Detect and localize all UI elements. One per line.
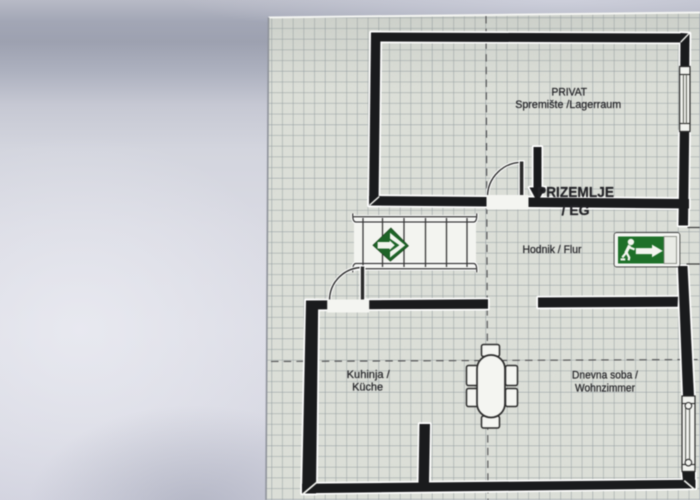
svg-text:Dnevna soba /: Dnevna soba /	[572, 370, 639, 382]
svg-text:Kuhinja /: Kuhinja /	[347, 369, 391, 381]
svg-text:PRIZEMLJE: PRIZEMLJE	[537, 184, 614, 201]
svg-text:Spremište /Lagerraum: Spremište /Lagerraum	[515, 99, 621, 111]
svg-text:Wohnzimmer: Wohnzimmer	[575, 383, 635, 395]
svg-text:Hodnik / Flur: Hodnik / Flur	[523, 244, 582, 256]
svg-text:/ EG: / EG	[562, 203, 590, 218]
svg-text:PRIVAT: PRIVAT	[552, 87, 588, 99]
svg-text:Küche: Küche	[352, 382, 383, 394]
